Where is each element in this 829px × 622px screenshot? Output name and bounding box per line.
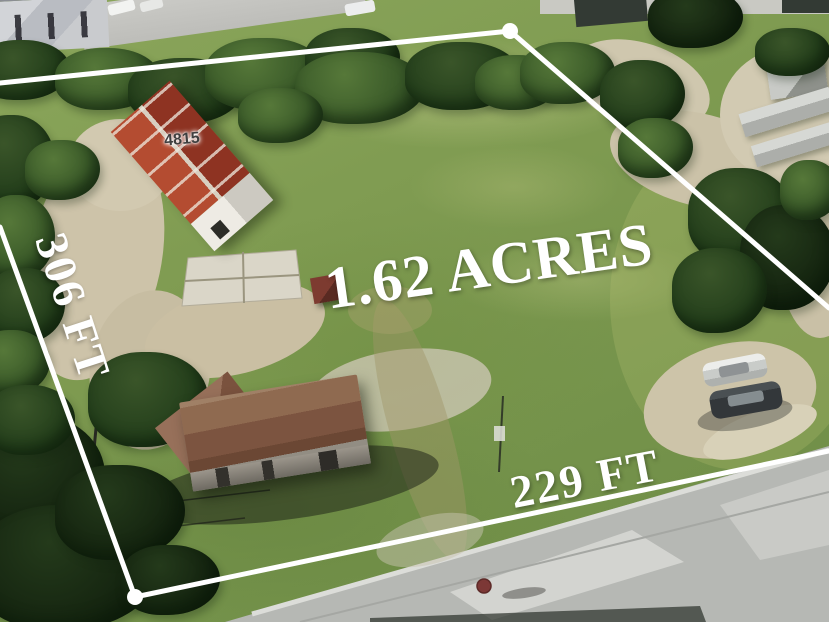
aerial-photo: 4815 1.62 ACRES 306 FT 229 FT [0,0,829,622]
vertex-dot [127,589,143,605]
vertex-dot [502,23,518,39]
boundary-top [0,31,510,83]
